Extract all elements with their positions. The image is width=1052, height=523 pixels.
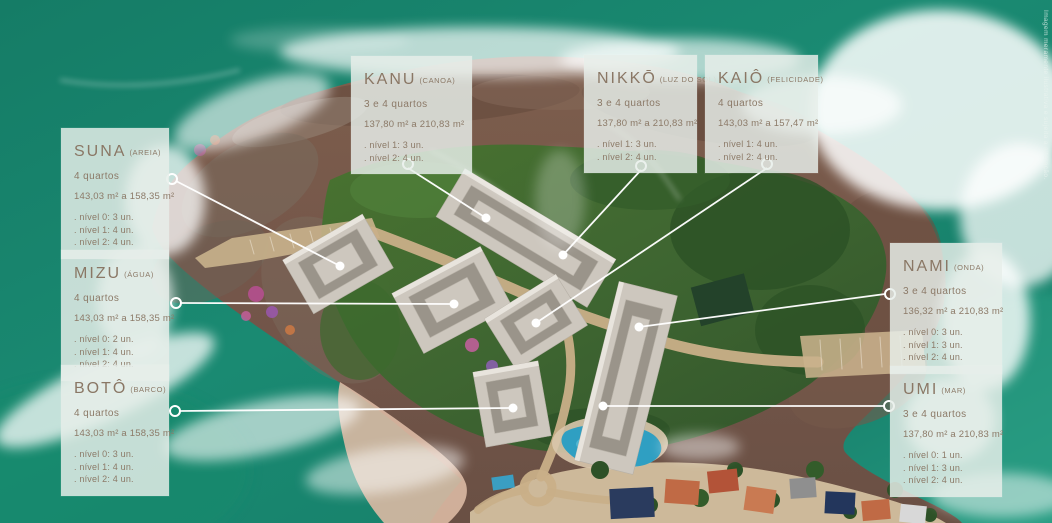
card-suna[interactable]: SUNA(AREIA) 4 quartos 143,03 m² a 158,35… [61, 128, 169, 259]
map-marker-kanu[interactable] [482, 214, 491, 223]
masterplan-view: SUNA(AREIA) 4 quartos 143,03 m² a 158,35… [0, 0, 1052, 523]
building-name: NAMI [903, 258, 951, 275]
building-name: BOTÔ [74, 380, 127, 397]
map-marker-nikko[interactable] [559, 251, 568, 260]
card-header: UMI(MAR) [903, 381, 998, 399]
card-kaio[interactable]: KAIÔ(FELICIDADE) 4 quartos 143,03 m² a 1… [705, 55, 818, 173]
card-header: KAIÔ(FELICIDADE) [718, 70, 814, 88]
levels-list: . nível 0: 3 un. . nível 1: 3 un. . níve… [903, 326, 998, 364]
building-name: KAIÔ [718, 70, 764, 87]
card-nikko[interactable]: NIKKŌ(LUZ DO SOL) 3 e 4 quartos 137,80 m… [584, 55, 697, 173]
level-line: . nível 2: 4 un. [364, 152, 468, 165]
map-marker-mizu[interactable] [450, 300, 459, 309]
levels-list: . nível 1: 4 un. . nível 2: 4 un. [718, 138, 814, 163]
level-line: . nível 0: 3 un. [903, 326, 998, 339]
area-range-label: 143,03 m² a 158,35 m² [74, 428, 165, 439]
building-name-meaning: (CANOA) [419, 76, 455, 85]
card-header: BOTÔ(BARCO) [74, 380, 165, 398]
building-name-meaning: (MAR) [941, 386, 966, 395]
level-line: . nível 2: 4 un. [74, 236, 165, 249]
level-line: . nível 1: 3 un. [903, 339, 998, 352]
level-line: . nível 2: 4 un. [597, 151, 693, 164]
building-name: MIZU [74, 265, 121, 282]
card-header: KANU(CANOA) [364, 71, 468, 89]
map-marker-suna[interactable] [336, 262, 345, 271]
levels-list: . nível 1: 3 un. . nível 2: 4 un. [364, 139, 468, 164]
levels-list: . nível 0: 3 un. . nível 1: 4 un. . níve… [74, 211, 165, 249]
level-line: . nível 1: 4 un. [718, 138, 814, 151]
level-line: . nível 1: 4 un. [74, 461, 165, 474]
level-line: . nível 0: 3 un. [74, 448, 165, 461]
rooms-label: 3 e 4 quartos [597, 98, 693, 109]
building-name-meaning: (AREIA) [129, 148, 161, 157]
rooms-label: 4 quartos [74, 408, 165, 419]
building-name: SUNA [74, 143, 126, 160]
map-marker-nami[interactable] [635, 323, 644, 332]
level-line: . nível 1: 3 un. [903, 462, 998, 475]
map-marker-umi[interactable] [599, 402, 608, 411]
level-line: . nível 2: 4 un. [74, 473, 165, 486]
map-marker-kaio[interactable] [532, 319, 541, 328]
rooms-label: 3 e 4 quartos [903, 286, 998, 297]
card-mizu[interactable]: MIZU(ÁGUA) 4 quartos 143,03 m² a 158,35 … [61, 250, 169, 381]
building-name-meaning: (ONDA) [954, 263, 984, 272]
level-line: . nível 0: 1 un. [903, 449, 998, 462]
card-header: NIKKŌ(LUZ DO SOL) [597, 70, 693, 88]
area-range-label: 143,03 m² a 158,35 m² [74, 313, 165, 324]
rooms-label: 3 e 4 quartos [903, 409, 998, 420]
rooms-label: 4 quartos [718, 98, 814, 109]
level-line: . nível 2: 4 un. [718, 151, 814, 164]
level-line: . nível 1: 3 un. [364, 139, 468, 152]
level-line: . nível 1: 4 un. [74, 224, 165, 237]
leader-line-boto [180, 408, 513, 411]
leader-line-nikko [563, 170, 641, 255]
card-nami[interactable]: NAMI(ONDA) 3 e 4 quartos 136,32 m² a 210… [890, 243, 1002, 374]
rooms-label: 3 e 4 quartos [364, 99, 468, 110]
building-name-meaning: (FELICIDADE) [767, 75, 823, 84]
level-line: . nível 2: 4 un. [903, 351, 998, 364]
level-line: . nível 2: 4 un. [903, 474, 998, 487]
area-range-label: 143,03 m² a 158,35 m² [74, 191, 165, 202]
level-line: . nível 0: 2 un. [74, 333, 165, 346]
leader-line-kanu [408, 168, 486, 218]
building-name: UMI [903, 381, 938, 398]
map-marker-boto[interactable] [509, 404, 518, 413]
disclaimer-text: Imagem meramente ilustrativa e sujeita a… [1042, 10, 1049, 180]
leader-line-suna [176, 181, 340, 266]
level-line: . nível 0: 3 un. [74, 211, 165, 224]
card-umi[interactable]: UMI(MAR) 3 e 4 quartos 137,80 m² a 210,8… [890, 366, 1002, 497]
area-range-label: 137,80 m² a 210,83 m² [597, 118, 693, 129]
levels-list: . nível 0: 1 un. . nível 1: 3 un. . níve… [903, 449, 998, 487]
leader-line-nami [639, 294, 885, 327]
card-kanu[interactable]: KANU(CANOA) 3 e 4 quartos 137,80 m² a 21… [351, 56, 472, 174]
leader-line-mizu [181, 303, 454, 304]
rooms-label: 4 quartos [74, 171, 165, 182]
area-range-label: 143,03 m² a 157,47 m² [718, 118, 814, 129]
card-anchor-boto [170, 406, 180, 416]
building-name-meaning: (ÁGUA) [124, 270, 154, 279]
levels-list: . nível 0: 3 un. . nível 1: 4 un. . níve… [74, 448, 165, 486]
area-range-label: 137,80 m² a 210,83 m² [903, 429, 998, 440]
level-line: . nível 1: 3 un. [597, 138, 693, 151]
card-boto[interactable]: BOTÔ(BARCO) 4 quartos 143,03 m² a 158,35… [61, 365, 169, 496]
card-header: SUNA(AREIA) [74, 143, 165, 161]
building-name-meaning: (BARCO) [130, 385, 166, 394]
levels-list: . nível 1: 3 un. . nível 2: 4 un. [597, 138, 693, 163]
building-name: KANU [364, 71, 416, 88]
level-line: . nível 1: 4 un. [74, 346, 165, 359]
building-name: NIKKŌ [597, 70, 657, 87]
card-header: MIZU(ÁGUA) [74, 265, 165, 283]
rooms-label: 4 quartos [74, 293, 165, 304]
card-header: NAMI(ONDA) [903, 258, 998, 276]
area-range-label: 137,80 m² a 210,83 m² [364, 119, 468, 130]
area-range-label: 136,32 m² a 210,83 m² [903, 306, 998, 317]
card-anchor-mizu [171, 298, 181, 308]
